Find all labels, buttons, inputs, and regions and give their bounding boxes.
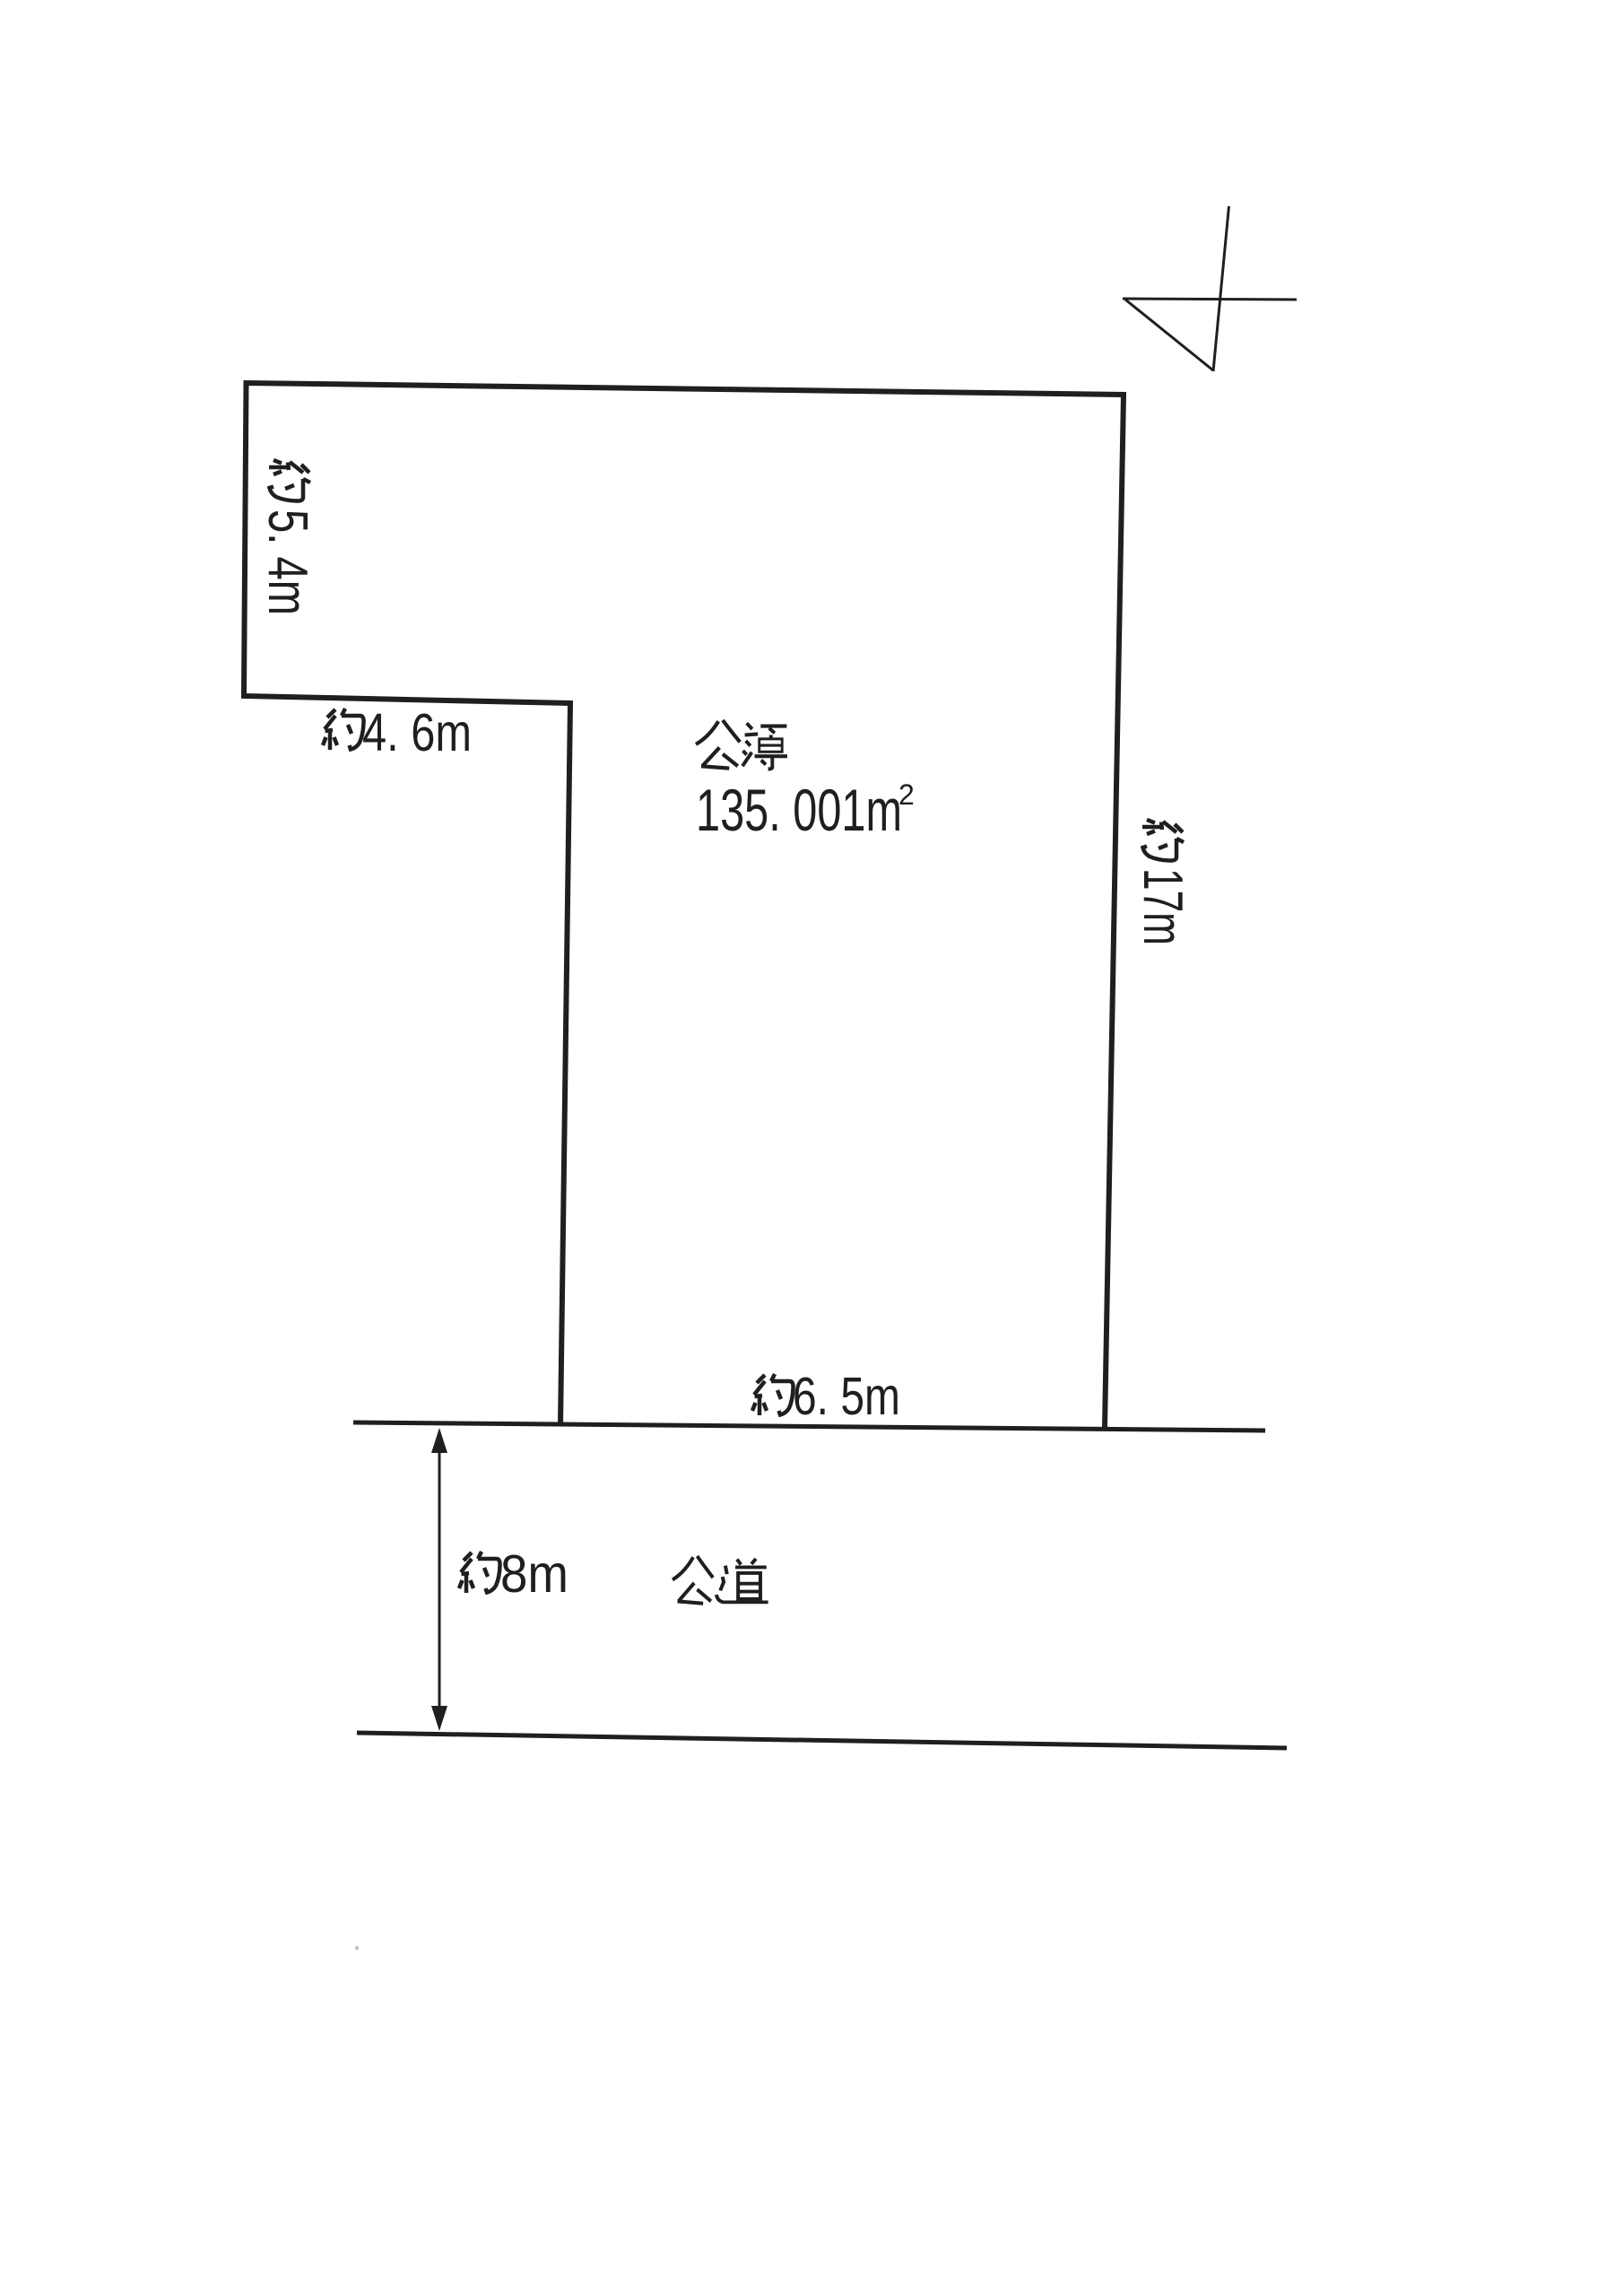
svg-text:17m: 17m	[1132, 868, 1193, 945]
svg-text:6. 5m: 6. 5m	[793, 1367, 900, 1426]
svg-text:5. 4m: 5. 4m	[256, 509, 318, 615]
svg-text:135. 001m: 135. 001m	[696, 777, 902, 843]
svg-text:8m: 8m	[500, 1544, 568, 1604]
svg-text:4. 6m: 4. 6m	[362, 703, 472, 762]
svg-text:2: 2	[898, 778, 915, 811]
